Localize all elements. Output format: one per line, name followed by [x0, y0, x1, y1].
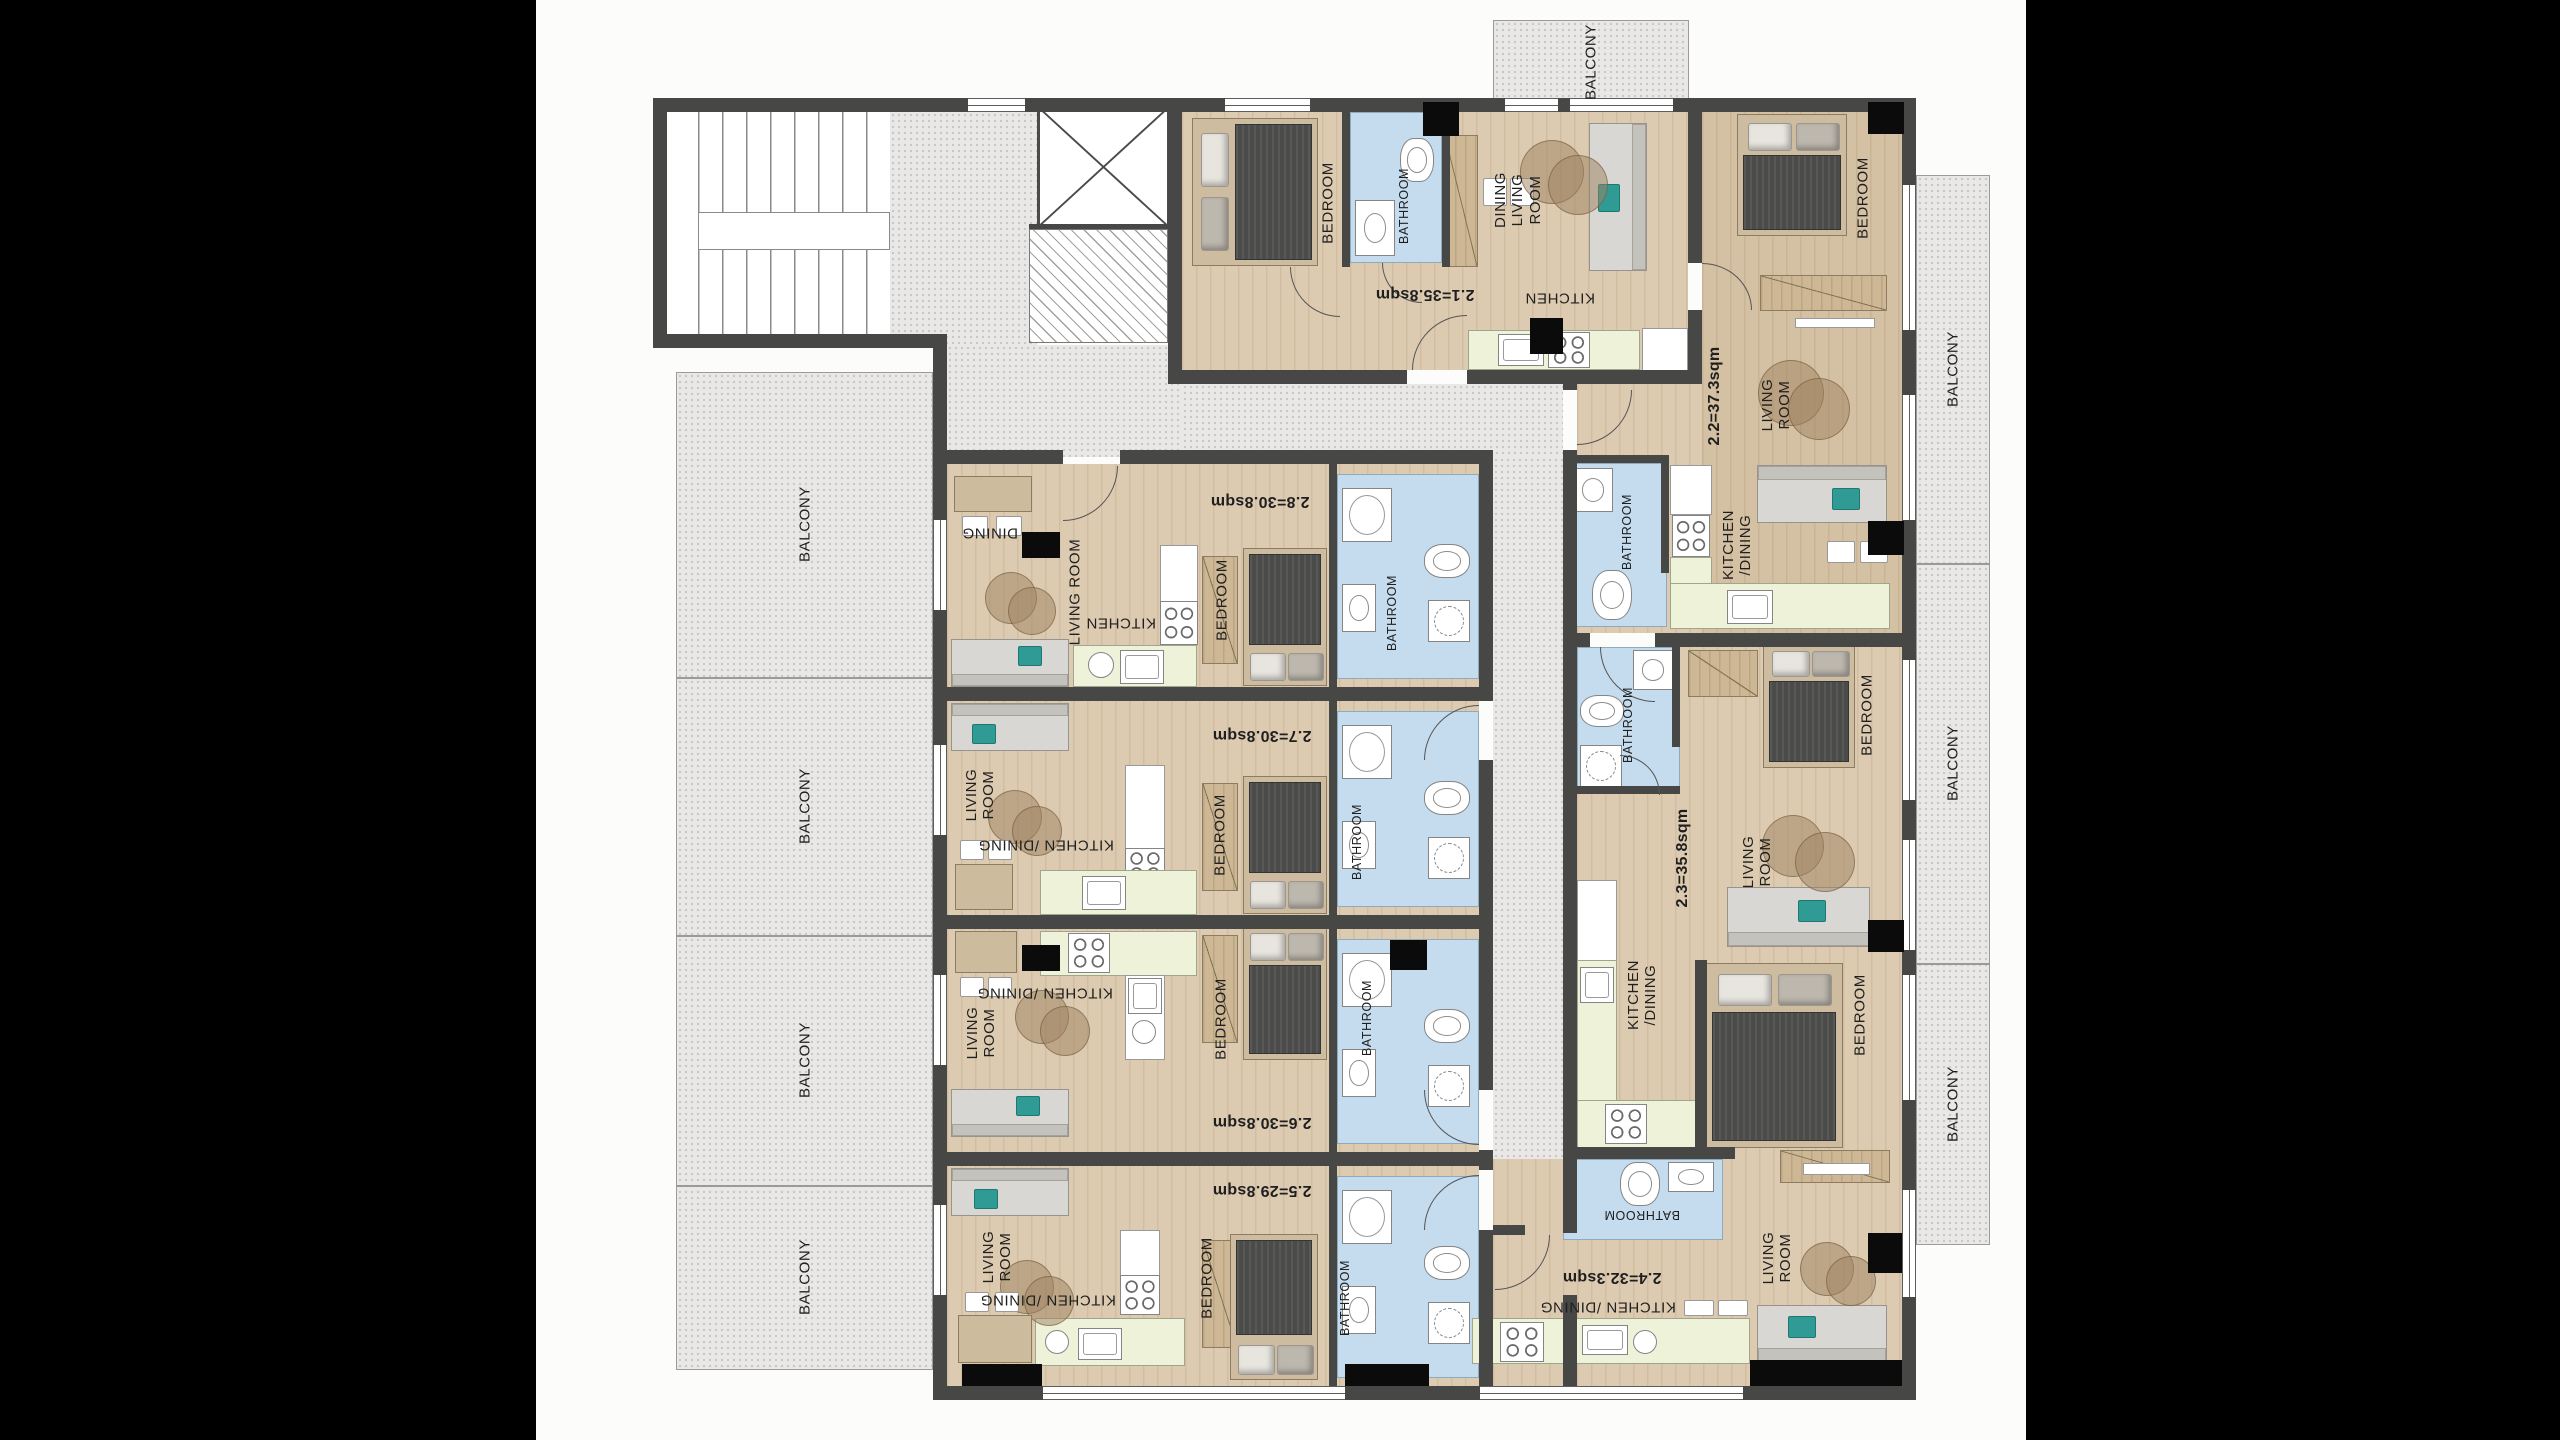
- corridor: [1182, 384, 1563, 457]
- balcony-label: BALCONY: [796, 1239, 813, 1315]
- room-label-bathroom: BATHROOM: [1397, 168, 1411, 244]
- wall: [940, 1152, 1493, 1166]
- washing-machine: [1428, 837, 1470, 879]
- bed: [1737, 114, 1847, 236]
- rug: [1008, 587, 1056, 635]
- room-label-kitchen-dining: KITCHEN /DINING: [1625, 960, 1660, 1030]
- rug: [1788, 378, 1850, 440]
- wall: [1688, 98, 1702, 263]
- stool: [1827, 541, 1855, 563]
- wall: [1342, 112, 1350, 267]
- kitchen-sink: [1082, 876, 1126, 910]
- toilet: [1580, 695, 1624, 727]
- room-label-living: LIVING ROOM: [1066, 539, 1083, 646]
- unit-2-5-area-label: 2.5=29.8sqm: [1213, 1181, 1312, 1199]
- wall: [1655, 633, 1916, 647]
- column: [1022, 945, 1060, 971]
- balcony-label: BALCONY: [1944, 1066, 1961, 1142]
- stool: [1718, 1300, 1748, 1316]
- sofa: [1757, 465, 1887, 523]
- unit-2-4-area-label: 2.4=32.3sqm: [1563, 1268, 1662, 1286]
- unit-2-7-area-label: 2.7=30.8sqm: [1213, 726, 1312, 744]
- stair-treads: [698, 112, 890, 212]
- column: [1868, 920, 1904, 952]
- dining-table: [955, 864, 1013, 910]
- column: [962, 1364, 1042, 1386]
- column: [1423, 102, 1459, 136]
- unit-2-2-area-label: 2.2=37.3sqm: [1706, 347, 1724, 446]
- kitchen-cabinet: [1120, 1230, 1160, 1276]
- toilet: [1592, 570, 1632, 620]
- window: [1902, 395, 1916, 520]
- room-label-kitchen-dining: KITCHEN /DINING: [978, 836, 1114, 853]
- window: [1570, 98, 1673, 112]
- room-label-bathroom: BATHROOM: [1385, 575, 1399, 651]
- wall: [1168, 98, 1182, 384]
- balcony-divider: [676, 1185, 933, 1187]
- kitchen-sink-round: [1045, 1330, 1069, 1354]
- kitchen-counter: [1040, 931, 1197, 976]
- room-label-kitchen: KITCHEN: [1086, 614, 1156, 631]
- wall: [1329, 464, 1337, 687]
- wall: [1672, 647, 1680, 747]
- room-label-bedroom: BEDROOM: [1211, 794, 1228, 876]
- unit-2-6-area-label: 2.6=30.8sqm: [1213, 1113, 1312, 1131]
- bathroom-sink: [1668, 1162, 1714, 1192]
- balcony-label: BALCONY: [796, 768, 813, 844]
- column: [1530, 318, 1563, 354]
- shaft-hatch: [1029, 229, 1168, 343]
- kitchen-sink: [1582, 1325, 1628, 1355]
- stove: [1068, 933, 1110, 973]
- toilet: [1620, 1162, 1660, 1206]
- kitchen-sink-round: [1132, 1020, 1156, 1044]
- bed: [1243, 924, 1327, 1060]
- wall: [940, 687, 1493, 701]
- stove: [1160, 601, 1198, 645]
- wall: [1120, 450, 1493, 464]
- corridor: [1493, 457, 1563, 1233]
- column: [1868, 521, 1904, 555]
- room-label-living: LIVING ROOM: [1760, 1232, 1795, 1285]
- lobby: [890, 112, 1037, 348]
- window: [933, 520, 947, 610]
- room-label-bathroom: BATHROOM: [1604, 1208, 1680, 1222]
- balcony-divider: [676, 677, 933, 679]
- kitchen-sink-round: [1633, 1330, 1657, 1354]
- bed: [1243, 548, 1327, 686]
- wardrobe: [1688, 650, 1758, 697]
- balcony-label: BALCONY: [1944, 331, 1961, 407]
- sofa: [951, 1168, 1069, 1216]
- wall: [1329, 1166, 1337, 1386]
- bathroom-sink: [1573, 468, 1613, 512]
- column: [1390, 940, 1427, 970]
- wall: [1168, 370, 1407, 384]
- room-label-kitchen-dining: KITCHEN /DINING: [1540, 1298, 1676, 1315]
- window: [1480, 1386, 1743, 1400]
- wall: [1563, 1147, 1735, 1159]
- room-label-bedroom: BEDROOM: [1198, 1237, 1215, 1319]
- window: [1902, 185, 1916, 330]
- washing-machine: [1428, 600, 1470, 642]
- room-label-bathroom: BATHROOM: [1338, 1260, 1352, 1336]
- window: [1043, 1386, 1345, 1400]
- room-label-bathroom: BATHROOM: [1620, 494, 1634, 570]
- window: [1902, 1190, 1916, 1297]
- balcony-divider: [676, 935, 933, 937]
- wall: [1479, 457, 1493, 700]
- wall: [1329, 701, 1337, 915]
- wall: [940, 450, 1063, 464]
- room-label-dining-living: DINING LIVING ROOM: [1492, 172, 1544, 228]
- floor-plan-canvas: BALCONY BALCONY BALCONY BALCONY BALCONY …: [0, 0, 2560, 1440]
- balcony-divider: [1916, 963, 1990, 965]
- sofa: [1727, 887, 1870, 947]
- window: [933, 975, 947, 1065]
- stove: [1120, 1275, 1160, 1315]
- elevator-x-icon: [1040, 109, 1167, 225]
- wall: [1467, 370, 1702, 384]
- room-label-bedroom: BEDROOM: [1212, 978, 1229, 1060]
- room-label-bedroom: BEDROOM: [1851, 974, 1868, 1056]
- bed: [1192, 118, 1318, 266]
- dining-table: [955, 931, 1017, 973]
- stair-landing: [698, 212, 890, 250]
- balcony-label: BALCONY: [796, 1022, 813, 1098]
- column: [1868, 1233, 1902, 1273]
- washing-machine: [1428, 1302, 1470, 1344]
- wall: [1688, 310, 1702, 384]
- sofa: [951, 703, 1069, 751]
- stair-treads: [698, 250, 890, 334]
- room-label-kitchen-dining: KITCHEN /DINING: [980, 1291, 1116, 1308]
- sofa: [1757, 1305, 1887, 1363]
- wall: [1563, 633, 1590, 647]
- room-label-kitchen-dining: KITCHEN /DINING: [1720, 510, 1755, 580]
- toilet: [1424, 544, 1470, 578]
- kitchen-cabinet: [1670, 465, 1712, 515]
- wall: [1661, 463, 1669, 573]
- room-label-living: LIVING ROOM: [1759, 379, 1794, 432]
- stool: [1684, 1300, 1714, 1316]
- bathroom-sink: [1355, 200, 1395, 256]
- toilet: [1424, 1246, 1470, 1280]
- wall: [1479, 1230, 1493, 1400]
- shelf: [1803, 1163, 1870, 1175]
- wall: [940, 915, 1493, 929]
- kitchen-sink: [1128, 978, 1162, 1014]
- wall: [653, 98, 667, 348]
- kitchen-sink-round: [1088, 652, 1114, 678]
- room-label-bathroom: BATHROOM: [1360, 980, 1374, 1056]
- stove: [1500, 1322, 1544, 1362]
- room-label-living: LIVING ROOM: [964, 1007, 999, 1060]
- kitchen-sink: [1078, 1328, 1122, 1360]
- bed: [1705, 963, 1843, 1148]
- bed: [1243, 776, 1327, 914]
- wall: [1563, 376, 1577, 390]
- room-label-bathroom: BATHROOM: [1621, 687, 1635, 763]
- dining-table: [954, 476, 1032, 512]
- kitchen-counter: [1670, 583, 1890, 629]
- room-label-bedroom: BEDROOM: [1319, 162, 1336, 244]
- wall: [1493, 1225, 1525, 1235]
- wall: [1563, 450, 1577, 1233]
- window: [1902, 660, 1916, 800]
- sofa: [951, 1089, 1069, 1137]
- room-label-bedroom: BEDROOM: [1854, 157, 1871, 239]
- window: [1902, 975, 1916, 1100]
- rug: [1548, 155, 1608, 215]
- toilet: [1424, 1009, 1470, 1043]
- stove: [1672, 515, 1710, 557]
- column: [1022, 532, 1060, 558]
- room-label-bathroom: BATHROOM: [1350, 804, 1364, 880]
- bathroom-sink: [1342, 1049, 1376, 1097]
- elevator: [1037, 106, 1170, 228]
- shelf: [1795, 318, 1875, 328]
- bathroom-sink: [1342, 584, 1376, 632]
- sofa: [951, 639, 1069, 687]
- column: [1345, 1364, 1429, 1386]
- column: [1750, 1360, 1902, 1386]
- window: [1505, 98, 1558, 112]
- room-label-living: LIVING ROOM: [963, 769, 998, 822]
- balcony-label: BALCONY: [1582, 24, 1599, 100]
- kitchen-sink: [1727, 590, 1773, 624]
- kitchen-cabinet: [1577, 880, 1617, 965]
- room-label-bedroom: BEDROOM: [1213, 559, 1230, 641]
- rug: [1040, 1006, 1090, 1056]
- wall: [653, 334, 947, 348]
- dining-table: [958, 1315, 1032, 1363]
- bed: [1230, 1234, 1318, 1380]
- room-label-bedroom: BEDROOM: [1858, 674, 1875, 756]
- window: [968, 98, 1025, 112]
- shower: [1342, 725, 1392, 779]
- wall: [1570, 455, 1669, 463]
- unit-2-1-area-label: 2.1=35.8sqm: [1376, 285, 1475, 303]
- window: [1225, 98, 1310, 112]
- kitchen-sink: [1120, 650, 1164, 684]
- window: [933, 1205, 947, 1295]
- unit-2-3-area-label: 2.3=35.8sqm: [1674, 809, 1692, 908]
- kitchen-cabinet: [1125, 765, 1165, 850]
- shower: [1342, 1190, 1392, 1244]
- room-label-living: LIVING ROOM: [1740, 836, 1775, 889]
- kitchen-counter: [1670, 557, 1712, 585]
- balcony-divider: [1916, 563, 1990, 565]
- room-label-living: LIVING ROOM: [980, 1231, 1015, 1284]
- kitchen-cabinet: [1160, 545, 1198, 603]
- column: [1868, 102, 1904, 134]
- stove: [1605, 1104, 1647, 1144]
- washing-machine: [1580, 745, 1622, 787]
- bed: [1763, 642, 1855, 768]
- wall: [1329, 929, 1337, 1152]
- balcony-label: BALCONY: [796, 486, 813, 562]
- balcony-label: BALCONY: [1944, 725, 1961, 801]
- fridge: [1642, 328, 1688, 372]
- unit-2-8-area-label: 2.8=30.8sqm: [1211, 492, 1310, 510]
- shower: [1342, 488, 1392, 542]
- wardrobe: [1760, 275, 1887, 311]
- room-label-kitchen: KITCHEN: [1525, 289, 1595, 306]
- window: [1902, 840, 1916, 950]
- rug: [1795, 832, 1855, 892]
- corridor: [947, 345, 1182, 457]
- room-label-dining: DINING: [962, 524, 1018, 541]
- wall: [1695, 960, 1707, 1150]
- room-label-kitchen-dining: KITCHEN /DINING: [977, 984, 1113, 1001]
- toilet: [1424, 781, 1470, 815]
- kitchen-sink: [1580, 967, 1614, 1003]
- window: [933, 745, 947, 835]
